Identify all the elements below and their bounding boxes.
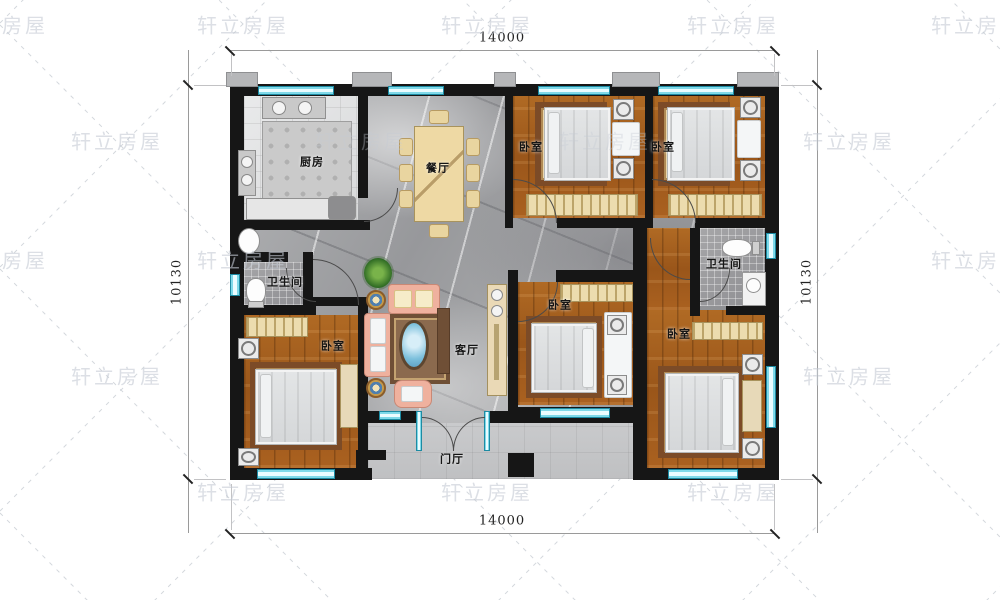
porch-pillar: [508, 453, 534, 477]
sofa-cushion: [394, 290, 412, 308]
dimension-top-value: 14000: [479, 31, 525, 46]
dining-chair: [429, 224, 449, 238]
extension-line: [231, 54, 232, 76]
dimension-right-value: 10130: [800, 259, 815, 305]
entrance-porch-floor: [368, 423, 633, 479]
room-label-kitchen: 厨房: [300, 157, 324, 168]
wall-bathroomR-bottom-a: [690, 306, 698, 315]
wall-right-divider: [633, 228, 647, 480]
pier-cap: [737, 72, 779, 87]
nightstand: [607, 375, 627, 395]
coffee-table: [399, 320, 429, 370]
wall-bathroomL-bottom: [230, 305, 316, 315]
dining-chair: [466, 190, 480, 208]
toilet: [722, 239, 752, 257]
room-label-dining: 餐厅: [426, 163, 450, 174]
nightstand: [613, 99, 634, 120]
dimension-bottom-value: 14000: [479, 514, 525, 529]
wall-corridor-top-a: [557, 218, 645, 228]
bed-pillows: [260, 374, 272, 438]
window-bathroomR: [766, 233, 776, 259]
pier-cap: [494, 72, 516, 87]
console-table: [437, 308, 450, 374]
nightstand: [742, 438, 763, 459]
extension-line: [194, 85, 226, 86]
wall-bathroomR-bottom-b: [726, 306, 779, 315]
toilet-tank: [752, 241, 760, 255]
bed-pillows: [582, 328, 594, 388]
kitchen-fridge: [328, 196, 356, 220]
dining-chair: [466, 138, 480, 156]
room-label-bedroom-bottom-right: 卧室: [667, 329, 691, 340]
wall-corridor-top-b: [695, 218, 779, 228]
extension-line: [781, 85, 813, 86]
sofa-cushion: [370, 346, 386, 372]
window-bedroomR-bottom: [668, 469, 738, 479]
dining-chair: [466, 164, 480, 182]
side-table: [366, 378, 386, 398]
window-bedroomM-bottom: [540, 408, 610, 418]
window-kitchen: [258, 86, 334, 95]
wall-bedroomM-top: [556, 270, 645, 282]
nightstand: [613, 158, 634, 179]
extension-line: [194, 479, 226, 480]
wardrobe: [692, 322, 763, 340]
dimension-line-left: [188, 50, 189, 533]
window-bedroomL-bottom: [257, 469, 335, 479]
nightstand: [740, 97, 761, 118]
bed-pillows: [548, 112, 560, 174]
dining-chair: [399, 164, 413, 182]
wall-bathroomL-top: [230, 252, 288, 262]
window-bedroomA: [538, 86, 610, 95]
nightstand: [238, 338, 259, 359]
dimension-left-value: 10130: [170, 259, 185, 305]
sofa-cushion: [415, 290, 433, 308]
wall-bedroomA-left: [505, 96, 513, 228]
wardrobe: [246, 317, 308, 337]
room-label-bathroom-right: 卫生间: [706, 259, 742, 270]
dining-chair: [429, 110, 449, 124]
nightstand: [607, 315, 627, 335]
pier-cap: [612, 72, 660, 87]
plant: [364, 258, 392, 288]
dimension-line-top: [230, 50, 775, 51]
toilet-tank: [248, 301, 264, 308]
pier-cap: [352, 72, 392, 87]
floor-plan-image: 厨房 餐厅 卧室 卧室 卫生间 卧室 客厅 卧室 卫生间 卧室 门厅 14000…: [0, 0, 1000, 600]
room-label-entrance-hall: 门厅: [440, 454, 464, 465]
window-bathroomL: [230, 274, 240, 296]
sofa-cushion: [370, 318, 386, 344]
stove-burner: [241, 174, 253, 186]
wall-kitchen-right: [358, 84, 368, 198]
room-label-bedroom-top-right: 卧室: [651, 142, 675, 153]
dimension-line-bottom: [230, 533, 775, 534]
bedroom-dresser: [737, 120, 761, 158]
bedroom-dresser: [612, 122, 640, 156]
bedroom-dresser: [340, 364, 358, 428]
tv-cabinet-decor: [491, 289, 503, 301]
kitchen-sink-basin: [298, 101, 312, 115]
tv-set: [494, 324, 499, 380]
extension-line: [774, 54, 775, 76]
window-bedroomR-side: [766, 366, 776, 428]
nightstand: [238, 448, 259, 466]
dining-chair: [399, 138, 413, 156]
vanity-sink: [238, 228, 260, 254]
dining-chair: [399, 190, 413, 208]
side-table: [366, 290, 386, 310]
nightstand: [742, 354, 763, 375]
tv-cabinet-decor: [491, 305, 503, 317]
extension-line: [231, 484, 232, 530]
room-label-bedroom-top-left: 卧室: [519, 142, 543, 153]
bed-pillows: [722, 378, 734, 446]
window-dining: [388, 86, 444, 95]
room-label-living: 客厅: [455, 345, 479, 356]
wall-bathroomR-left: [690, 228, 700, 316]
kitchen-sink-basin: [272, 101, 286, 115]
room-label-bathroom-left: 卫生间: [267, 277, 303, 288]
dimension-line-right: [817, 50, 818, 533]
extension-line: [781, 479, 813, 480]
window-entry-side: [379, 411, 401, 420]
extension-line: [774, 484, 775, 530]
bedroom-dresser: [742, 380, 762, 432]
window-bedroomB: [658, 86, 734, 95]
bathroom-sink: [746, 278, 761, 293]
armchair-cushion: [401, 386, 423, 402]
porch-corner-v: [356, 450, 366, 478]
wall-bedroomM-left: [508, 270, 518, 421]
stove-burner: [241, 156, 253, 168]
nightstand: [740, 160, 761, 181]
room-label-bedroom-bottom-left: 卧室: [321, 341, 345, 352]
room-label-bedroom-middle: 卧室: [548, 300, 572, 311]
